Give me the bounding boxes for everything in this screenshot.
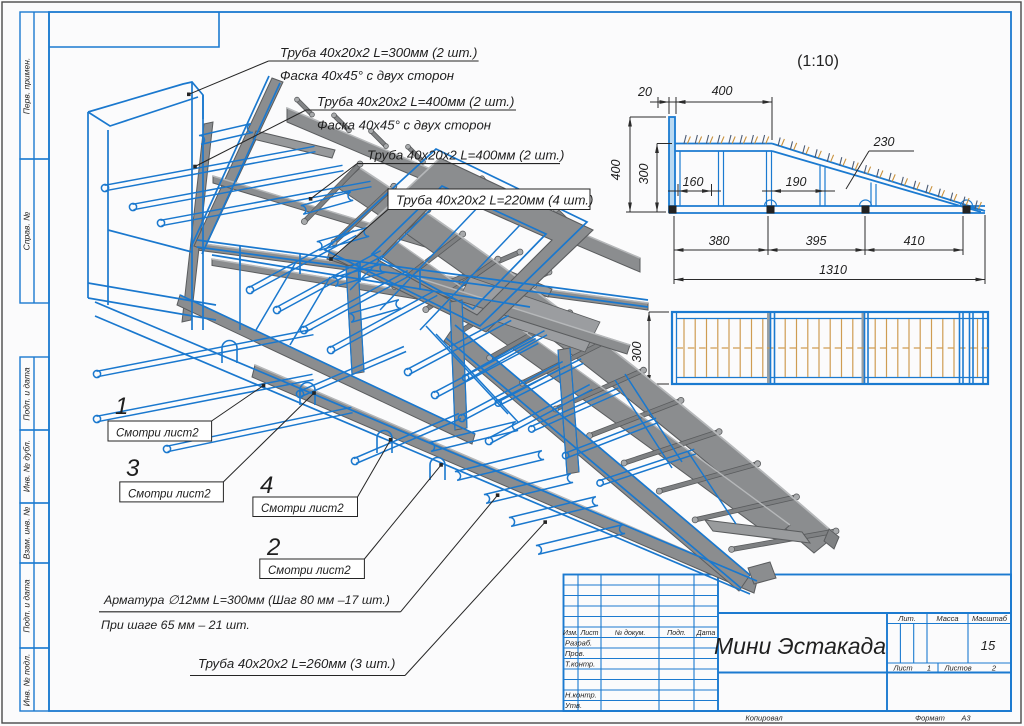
svg-text:Дата: Дата [696, 630, 716, 637]
svg-text:190: 190 [786, 175, 807, 189]
svg-text:Пров.: Пров. [565, 649, 585, 658]
svg-text:230: 230 [873, 135, 895, 149]
svg-text:Подп. и дата: Подп. и дата [22, 367, 32, 420]
svg-text:20: 20 [637, 85, 652, 99]
svg-text:Труба 40х20х2 L=260мм (3 шт.): Труба 40х20х2 L=260мм (3 шт.) [198, 656, 395, 671]
svg-text:400: 400 [712, 84, 733, 98]
svg-text:4: 4 [260, 472, 273, 499]
svg-text:3: 3 [126, 455, 140, 482]
svg-text:Лист: Лист [579, 630, 598, 637]
svg-text:Разраб.: Разраб. [565, 639, 592, 648]
svg-text:15: 15 [981, 638, 996, 653]
svg-text:Копировал: Копировал [745, 714, 783, 723]
svg-text:Масштаб: Масштаб [972, 614, 1008, 623]
svg-text:Фаска 40х45° с двух сторон: Фаска 40х45° с двух сторон [317, 118, 491, 133]
svg-text:Перв. примен.: Перв. примен. [22, 58, 32, 115]
svg-text:При шаге 65 мм – 21 шт.: При шаге 65 мм – 21 шт. [101, 618, 250, 632]
svg-text:Смотри лист2: Смотри лист2 [268, 565, 351, 577]
svg-text:Инв. № дубл.: Инв. № дубл. [22, 440, 32, 492]
svg-text:Смотри лист2: Смотри лист2 [128, 488, 211, 500]
svg-text:1: 1 [115, 393, 128, 420]
svg-text:Справ. №: Справ. № [22, 212, 32, 251]
svg-text:А3: А3 [960, 714, 971, 723]
svg-text:2: 2 [991, 664, 997, 673]
svg-text:160: 160 [683, 175, 704, 189]
svg-text:Т.контр.: Т.контр. [565, 660, 595, 669]
svg-text:380: 380 [709, 234, 730, 248]
svg-text:Лит.: Лит. [897, 614, 916, 623]
svg-text:(1:10): (1:10) [797, 53, 839, 70]
svg-text:Изм.: Изм. [563, 630, 578, 637]
svg-text:Труба 40х20х2 L=220мм (4 шт.): Труба 40х20х2 L=220мм (4 шт.) [396, 193, 593, 208]
svg-text:Труба 40х20х2 L=400мм (2 шт.): Труба 40х20х2 L=400мм (2 шт.) [367, 148, 564, 163]
svg-text:Утв.: Утв. [564, 701, 582, 710]
svg-text:400: 400 [609, 160, 623, 181]
svg-text:Подп.: Подп. [667, 629, 686, 637]
svg-text:Н.контр.: Н.контр. [565, 691, 597, 700]
svg-text:Подп. и дата: Подп. и дата [22, 579, 32, 632]
svg-text:Труба 40х20х2 L=400мм (2 шт.): Труба 40х20х2 L=400мм (2 шт.) [317, 94, 514, 109]
svg-text:Фаска 40х45° с двух сторон: Фаска 40х45° с двух сторон [280, 68, 454, 83]
svg-text:Труба 40х20х2 L=300мм (2 шт.): Труба 40х20х2 L=300мм (2 шт.) [280, 45, 477, 60]
svg-text:1: 1 [927, 664, 931, 673]
svg-text:300: 300 [630, 342, 644, 363]
svg-text:2: 2 [266, 534, 280, 561]
svg-text:Листов: Листов [943, 664, 971, 673]
svg-text:1310: 1310 [819, 263, 847, 277]
svg-text:Лист: Лист [892, 664, 912, 673]
svg-text:Мини Эстакада: Мини Эстакада [714, 633, 886, 659]
svg-text:Инв. № подл.: Инв. № подл. [22, 654, 32, 707]
svg-text:Формат: Формат [915, 714, 945, 723]
svg-text:Масса: Масса [936, 614, 958, 623]
svg-text:Смотри лист2: Смотри лист2 [116, 428, 199, 440]
svg-text:Смотри лист2: Смотри лист2 [261, 503, 344, 515]
svg-text:410: 410 [904, 234, 925, 248]
svg-text:395: 395 [806, 234, 827, 248]
svg-text:300: 300 [637, 164, 651, 185]
svg-text:Взам. инв. №: Взам. инв. № [22, 507, 32, 560]
svg-text:№ докум.: № докум. [615, 629, 646, 637]
svg-text:Арматура ∅12мм L=300мм (Шаг 8: Арматура ∅12мм L=300мм (Шаг 80 мм –17 шт… [103, 593, 390, 607]
